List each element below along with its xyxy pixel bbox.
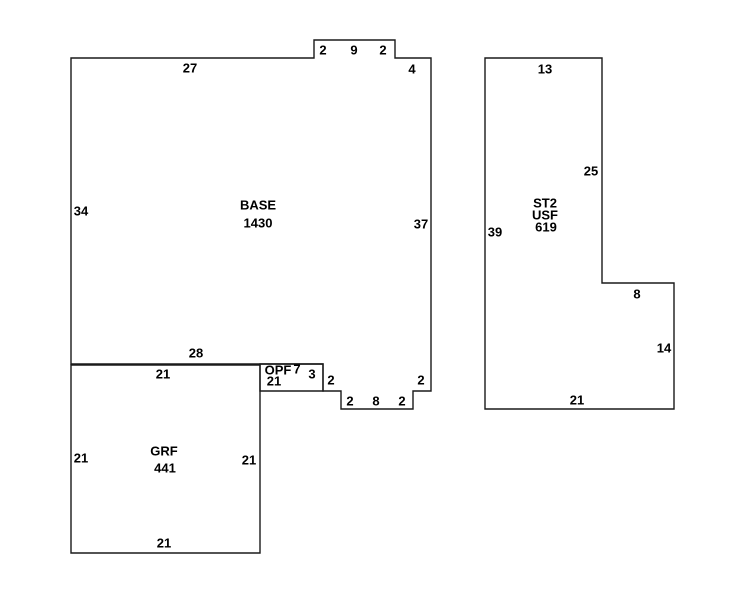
base-dimension-label: 2 [417,373,424,388]
opf-dimension-label: 7 [293,362,300,377]
grf-dimension-label: 21 [156,367,170,382]
st2-dimension-label: 13 [538,62,552,77]
base-dimension-label: 37 [414,217,428,232]
base-dimension-label: 4 [408,62,416,77]
base-dimension-label: 27 [183,61,197,76]
opf-dimension-label: 3 [308,367,315,382]
grf-type-label: GRF [150,444,178,459]
base-dimension-label: 8 [372,394,379,409]
grf-area-label: 441 [154,461,176,476]
grf-footprint-outline [71,365,260,553]
st2-dimension-label: 8 [633,287,640,302]
base-dimension-label: 2 [398,394,405,409]
base-dimension-label: 2 [319,43,326,58]
base-dimension-label: 2 [379,43,386,58]
base-dimension-label: 2 [346,394,353,409]
st2-dimension-label: 25 [584,164,598,179]
st2-dimension-label: 14 [657,341,672,356]
sketch-canvas: 27292434BASE1430372822822OPF72132121GRF4… [0,0,746,595]
property-sketch-page: 27292434BASE1430372822822OPF72132121GRF4… [0,0,746,595]
grf-dimension-label: 21 [157,536,171,551]
base-type-label: BASE [240,198,276,213]
st2-dimension-label: 39 [488,225,502,240]
st2-dimension-label: 21 [570,393,584,408]
st2-footprint-outline [485,58,674,409]
base-dimension-label: 9 [350,43,357,58]
base-dimension-label: 2 [327,373,334,388]
base-dimension-label: 34 [74,204,89,219]
st2-area-label: 619 [535,220,557,235]
base-area-label: 1430 [244,216,273,231]
base-dimension-label: 28 [189,346,203,361]
opf-area-label: 21 [267,374,281,389]
grf-dimension-label: 21 [242,453,256,468]
grf-dimension-label: 21 [74,451,88,466]
